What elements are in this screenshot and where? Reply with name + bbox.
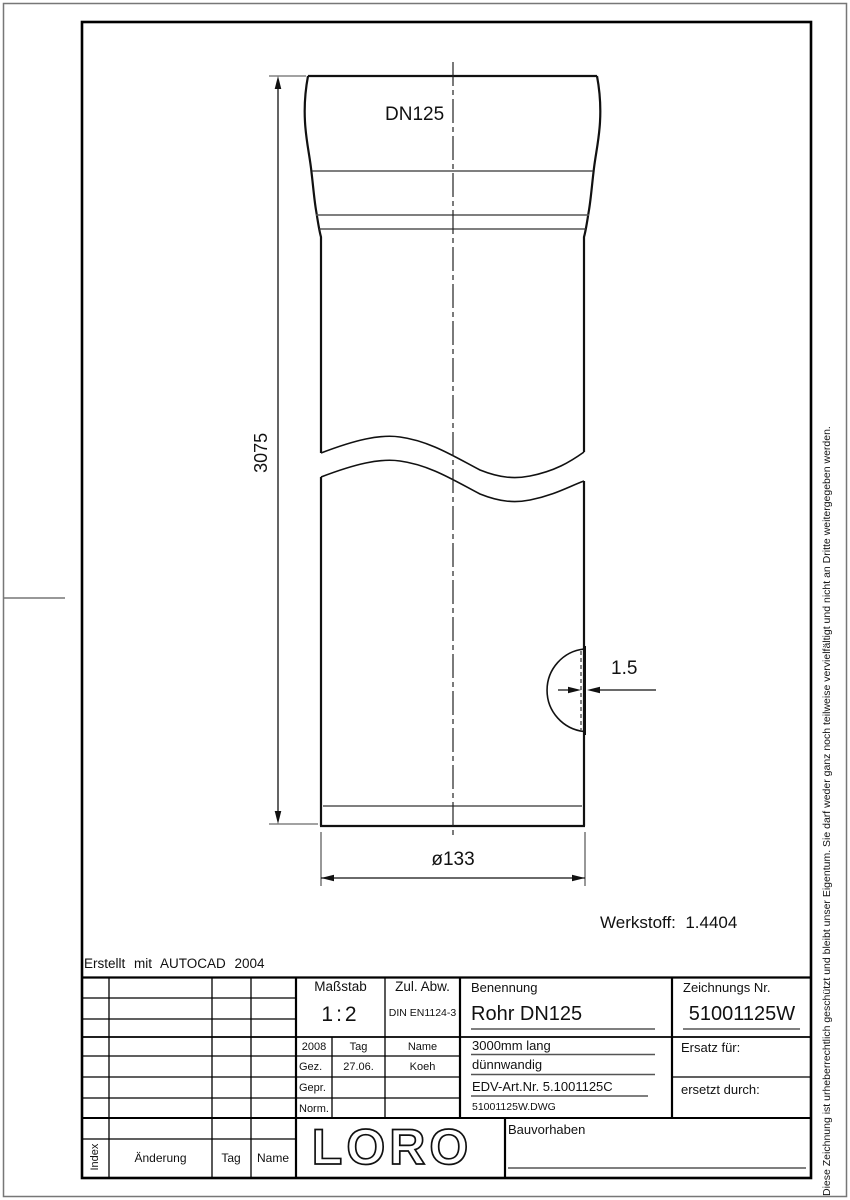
created-with-label: Erstellt mit AUTOCAD 2004 [84, 957, 265, 972]
drawing-sheet: LORO DN125 3075 ø133 1.5 Werkstoff: 1.44… [0, 0, 850, 1200]
wall-thickness-detail [547, 646, 656, 735]
gepr-label: Gepr. [299, 1082, 326, 1094]
dim-wall-label: 1.5 [611, 659, 637, 680]
dimension-length [269, 76, 318, 824]
name-column-header: Name [386, 1041, 459, 1053]
name-label: Name [251, 1152, 295, 1165]
zeichnungs-label: Zeichnungs Nr. [683, 981, 770, 995]
gez-label: Gez. [299, 1061, 322, 1073]
benennung-value: Rohr DN125 [471, 1003, 582, 1025]
desc-line-3: EDV-Art.Nr. 5.1001125C [472, 1080, 613, 1094]
masstab-value: 1:2 [297, 1003, 384, 1026]
index-label: Index [89, 1137, 101, 1177]
loro-logo: LORO [312, 1119, 472, 1175]
zul-abw-value: DIN EN1124-3 [386, 1008, 459, 1020]
ersetzt-durch-label: ersetzt durch: [681, 1083, 760, 1097]
dim-length-label: 3075 [252, 418, 272, 488]
norm-label: Norm. [299, 1103, 329, 1115]
benennung-label: Benennung [471, 981, 538, 995]
desc-line-1: 3000mm lang [472, 1039, 551, 1053]
dn-label: DN125 [385, 105, 444, 126]
bauvorhaben-label: Bauvorhaben [508, 1123, 585, 1137]
desc-line-4: 51001125W.DWG [472, 1102, 556, 1114]
year-cell: 2008 [297, 1041, 331, 1053]
dim-diameter-label: ø133 [403, 850, 503, 871]
material-label: Werkstoff: 1.4404 [600, 914, 737, 933]
aenderung-label: Änderung [110, 1152, 211, 1165]
pipe-outline [305, 62, 601, 838]
desc-line-2: dünnwandig [472, 1058, 542, 1072]
zeichnungs-value: 51001125W [672, 1003, 812, 1025]
ersatz-fuer-label: Ersatz für: [681, 1041, 740, 1055]
tag-label: Tag [212, 1152, 250, 1165]
gez-name: Koeh [386, 1061, 459, 1073]
zul-abw-label: Zul. Abw. [386, 980, 459, 995]
masstab-label: Maßstab [297, 980, 384, 995]
copyright-notice: Diese Zeichnung ist urheberrechtlich ges… [822, 334, 834, 1196]
gez-date: 27.06. [333, 1061, 384, 1073]
tag-column-header: Tag [333, 1041, 384, 1053]
